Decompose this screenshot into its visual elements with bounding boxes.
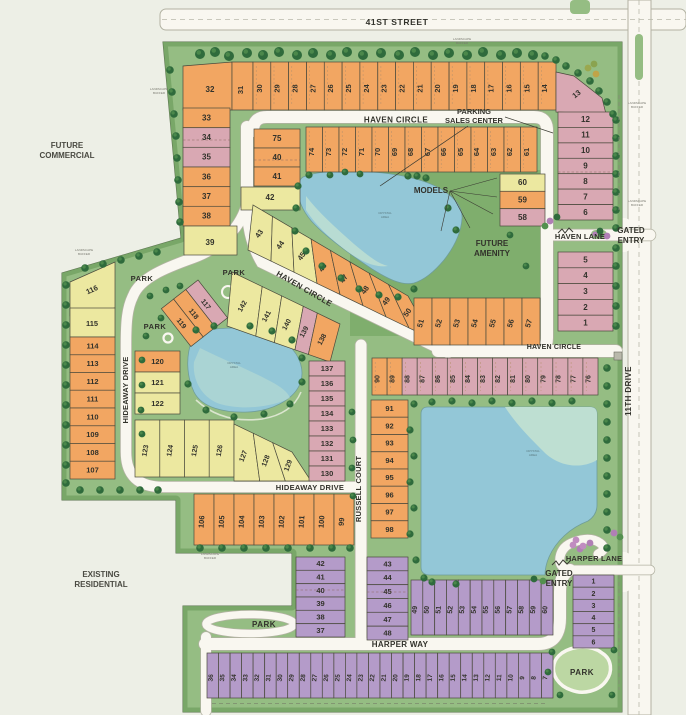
svg-text:66: 66 xyxy=(439,148,448,156)
svg-text:FUTURE: FUTURE xyxy=(476,239,509,248)
svg-text:38: 38 xyxy=(202,212,211,221)
svg-text:COMMERCIAL: COMMERCIAL xyxy=(39,151,94,160)
svg-text:88: 88 xyxy=(405,375,412,383)
svg-text:105: 105 xyxy=(216,515,226,528)
svg-text:HIDEAWAY DRIVE: HIDEAWAY DRIVE xyxy=(276,483,344,492)
svg-text:137: 137 xyxy=(321,364,334,373)
svg-text:35: 35 xyxy=(202,153,211,162)
svg-text:53: 53 xyxy=(459,606,467,614)
svg-text:59: 59 xyxy=(518,196,527,205)
svg-text:41ST STREET: 41ST STREET xyxy=(366,17,429,27)
svg-text:23: 23 xyxy=(357,674,365,682)
svg-text:99: 99 xyxy=(337,517,347,526)
svg-text:33: 33 xyxy=(202,113,211,122)
svg-text:11: 11 xyxy=(496,674,504,682)
svg-text:22: 22 xyxy=(369,674,377,682)
svg-text:103: 103 xyxy=(256,515,266,528)
svg-text:BUFFER: BUFFER xyxy=(204,556,217,560)
svg-text:AMENITY: AMENITY xyxy=(474,249,511,258)
svg-text:1: 1 xyxy=(592,579,596,586)
svg-text:76: 76 xyxy=(586,375,593,383)
svg-text:90: 90 xyxy=(375,375,382,383)
svg-text:70: 70 xyxy=(373,148,382,156)
svg-text:79: 79 xyxy=(540,375,547,383)
svg-text:EXISTING: EXISTING xyxy=(82,570,119,579)
svg-text:46: 46 xyxy=(383,601,391,610)
svg-text:62: 62 xyxy=(505,148,514,156)
svg-text:29: 29 xyxy=(288,674,296,682)
svg-text:91: 91 xyxy=(385,404,393,413)
svg-text:6: 6 xyxy=(583,208,588,217)
svg-text:8: 8 xyxy=(583,177,588,186)
svg-text:HARPER WAY: HARPER WAY xyxy=(372,640,429,649)
svg-text:68: 68 xyxy=(406,148,415,156)
svg-text:86: 86 xyxy=(435,375,442,383)
svg-text:ENTRY: ENTRY xyxy=(618,236,645,245)
svg-text:RESIDENTIAL: RESIDENTIAL xyxy=(74,580,127,589)
svg-text:13: 13 xyxy=(473,674,481,682)
svg-text:83: 83 xyxy=(480,375,487,383)
svg-text:10: 10 xyxy=(507,674,515,682)
svg-text:43: 43 xyxy=(383,559,391,568)
svg-text:87: 87 xyxy=(420,375,427,383)
svg-text:PARK: PARK xyxy=(144,322,167,331)
svg-text:20: 20 xyxy=(392,674,400,682)
svg-text:26: 26 xyxy=(323,674,331,682)
svg-text:102: 102 xyxy=(276,515,286,528)
svg-text:108: 108 xyxy=(86,448,99,457)
svg-text:32: 32 xyxy=(254,674,262,682)
svg-text:72: 72 xyxy=(340,148,349,156)
svg-text:78: 78 xyxy=(555,375,562,383)
svg-text:40: 40 xyxy=(273,153,282,162)
svg-text:PARK: PARK xyxy=(252,620,276,629)
svg-text:45: 45 xyxy=(383,587,391,596)
svg-text:HARPER LANE: HARPER LANE xyxy=(566,554,622,563)
svg-text:132: 132 xyxy=(321,439,334,448)
svg-text:107: 107 xyxy=(86,466,99,475)
svg-text:11TH DRIVE: 11TH DRIVE xyxy=(624,366,633,416)
svg-text:104: 104 xyxy=(236,514,246,528)
svg-text:36: 36 xyxy=(208,674,216,682)
svg-text:AREA: AREA xyxy=(230,365,238,369)
svg-text:30: 30 xyxy=(277,674,285,682)
svg-text:96: 96 xyxy=(385,490,393,499)
svg-text:7: 7 xyxy=(583,192,588,201)
svg-text:ENTRY: ENTRY xyxy=(546,579,573,588)
svg-text:16: 16 xyxy=(438,674,446,682)
svg-text:31: 31 xyxy=(265,674,273,682)
svg-text:47: 47 xyxy=(383,615,391,624)
svg-text:41: 41 xyxy=(316,573,324,582)
svg-text:PARKING: PARKING xyxy=(457,107,491,116)
svg-text:RUSSELL COURT: RUSSELL COURT xyxy=(354,456,363,522)
svg-text:113: 113 xyxy=(86,359,98,368)
svg-text:106: 106 xyxy=(196,515,206,528)
svg-text:HAVEN CIRCLE: HAVEN CIRCLE xyxy=(527,344,582,351)
svg-text:9: 9 xyxy=(583,162,588,171)
svg-text:111: 111 xyxy=(87,395,99,404)
svg-text:33: 33 xyxy=(242,674,250,682)
svg-text:136: 136 xyxy=(321,379,334,388)
svg-text:61: 61 xyxy=(522,148,531,156)
svg-text:BUFFER: BUFFER xyxy=(78,252,91,256)
svg-text:1: 1 xyxy=(583,319,588,328)
svg-text:15: 15 xyxy=(450,674,458,682)
svg-text:12: 12 xyxy=(484,674,492,682)
svg-text:80: 80 xyxy=(525,375,532,383)
svg-text:100: 100 xyxy=(316,515,326,528)
svg-text:65: 65 xyxy=(456,148,465,156)
svg-text:122: 122 xyxy=(151,399,164,408)
svg-text:74: 74 xyxy=(307,147,316,156)
svg-text:2: 2 xyxy=(592,591,596,598)
svg-text:25: 25 xyxy=(334,674,342,682)
svg-text:3: 3 xyxy=(583,287,588,296)
svg-text:HIDEAWAY DRIVE: HIDEAWAY DRIVE xyxy=(121,357,130,424)
svg-text:2: 2 xyxy=(583,303,588,312)
svg-text:6: 6 xyxy=(592,639,596,646)
svg-text:51: 51 xyxy=(435,606,443,614)
svg-text:BUFFER: BUFFER xyxy=(153,91,166,95)
svg-text:42: 42 xyxy=(266,193,275,202)
svg-text:49: 49 xyxy=(412,606,420,614)
svg-text:85: 85 xyxy=(450,375,457,383)
svg-text:63: 63 xyxy=(489,148,498,156)
svg-text:36: 36 xyxy=(202,172,211,181)
svg-text:4: 4 xyxy=(583,271,588,280)
svg-text:41: 41 xyxy=(273,172,282,181)
svg-text:69: 69 xyxy=(390,148,399,156)
svg-text:130: 130 xyxy=(321,469,334,478)
svg-text:FUTURE: FUTURE xyxy=(51,141,84,150)
svg-text:39: 39 xyxy=(206,238,215,247)
svg-text:73: 73 xyxy=(324,148,333,156)
svg-text:54: 54 xyxy=(471,606,479,614)
svg-text:50: 50 xyxy=(423,606,431,614)
svg-text:58: 58 xyxy=(518,606,526,614)
svg-text:24: 24 xyxy=(346,674,354,682)
svg-text:81: 81 xyxy=(510,375,517,383)
svg-text:59: 59 xyxy=(530,606,538,614)
svg-text:56: 56 xyxy=(494,606,502,614)
svg-text:14: 14 xyxy=(461,674,469,682)
svg-text:71: 71 xyxy=(357,148,366,156)
svg-text:115: 115 xyxy=(86,319,98,328)
svg-text:95: 95 xyxy=(385,473,393,482)
svg-text:60: 60 xyxy=(542,606,550,614)
svg-text:135: 135 xyxy=(321,394,334,403)
svg-text:31: 31 xyxy=(236,86,245,94)
svg-text:19: 19 xyxy=(404,674,412,682)
svg-text:57: 57 xyxy=(506,606,514,614)
svg-text:4: 4 xyxy=(592,615,596,622)
svg-text:37: 37 xyxy=(202,192,211,201)
svg-text:131: 131 xyxy=(321,454,334,463)
svg-text:34: 34 xyxy=(202,133,211,142)
svg-text:97: 97 xyxy=(385,508,393,517)
svg-text:17: 17 xyxy=(427,674,435,682)
svg-text:93: 93 xyxy=(385,439,393,448)
svg-text:38: 38 xyxy=(316,613,324,622)
svg-text:AREA: AREA xyxy=(529,453,537,457)
svg-text:27: 27 xyxy=(311,674,319,682)
svg-text:82: 82 xyxy=(495,375,502,383)
svg-text:PARK: PARK xyxy=(570,668,594,677)
svg-text:64: 64 xyxy=(472,147,481,156)
svg-text:120: 120 xyxy=(151,357,164,366)
svg-text:HAVEN LANE: HAVEN LANE xyxy=(555,232,605,241)
svg-text:18: 18 xyxy=(415,674,423,682)
svg-text:10: 10 xyxy=(581,146,590,155)
svg-text:12: 12 xyxy=(581,115,590,124)
svg-text:58: 58 xyxy=(518,213,527,222)
svg-text:44: 44 xyxy=(383,573,392,582)
svg-text:5: 5 xyxy=(592,627,596,634)
svg-text:BUFFER: BUFFER xyxy=(631,203,644,207)
svg-text:121: 121 xyxy=(151,378,164,387)
svg-text:110: 110 xyxy=(86,412,98,421)
svg-text:84: 84 xyxy=(465,375,472,383)
svg-text:75: 75 xyxy=(273,134,282,143)
svg-text:3: 3 xyxy=(592,603,596,610)
svg-text:21: 21 xyxy=(381,674,389,682)
svg-text:112: 112 xyxy=(86,377,98,386)
svg-text:PARK: PARK xyxy=(131,274,154,283)
svg-text:134: 134 xyxy=(321,409,334,418)
svg-text:60: 60 xyxy=(518,178,527,187)
svg-text:77: 77 xyxy=(570,375,577,383)
svg-text:SALES CENTER: SALES CENTER xyxy=(445,116,504,125)
svg-text:42: 42 xyxy=(316,559,324,568)
svg-text:GATED: GATED xyxy=(617,226,645,235)
svg-text:89: 89 xyxy=(390,375,397,383)
svg-text:HAVEN CIRCLE: HAVEN CIRCLE xyxy=(364,116,428,125)
svg-text:BUFFER: BUFFER xyxy=(456,41,469,45)
svg-text:PARK: PARK xyxy=(223,268,246,277)
svg-text:37: 37 xyxy=(316,626,324,635)
svg-text:94: 94 xyxy=(385,456,394,465)
svg-text:34: 34 xyxy=(231,674,239,682)
svg-text:MODELS: MODELS xyxy=(414,186,449,195)
svg-text:133: 133 xyxy=(321,424,334,433)
svg-text:28: 28 xyxy=(300,674,308,682)
svg-text:109: 109 xyxy=(86,430,99,439)
svg-text:98: 98 xyxy=(385,525,393,534)
svg-text:52: 52 xyxy=(447,606,455,614)
svg-text:GATED: GATED xyxy=(545,569,573,578)
svg-text:AREA: AREA xyxy=(381,215,389,219)
svg-text:BUFFER: BUFFER xyxy=(631,105,644,109)
svg-text:48: 48 xyxy=(383,629,391,638)
svg-text:114: 114 xyxy=(86,341,99,350)
svg-text:55: 55 xyxy=(483,606,491,614)
svg-text:92: 92 xyxy=(385,421,393,430)
svg-text:5: 5 xyxy=(583,255,588,264)
svg-text:101: 101 xyxy=(296,515,306,528)
svg-text:35: 35 xyxy=(219,674,227,682)
svg-text:39: 39 xyxy=(316,599,324,608)
svg-text:32: 32 xyxy=(206,85,215,94)
svg-text:11: 11 xyxy=(581,131,590,140)
